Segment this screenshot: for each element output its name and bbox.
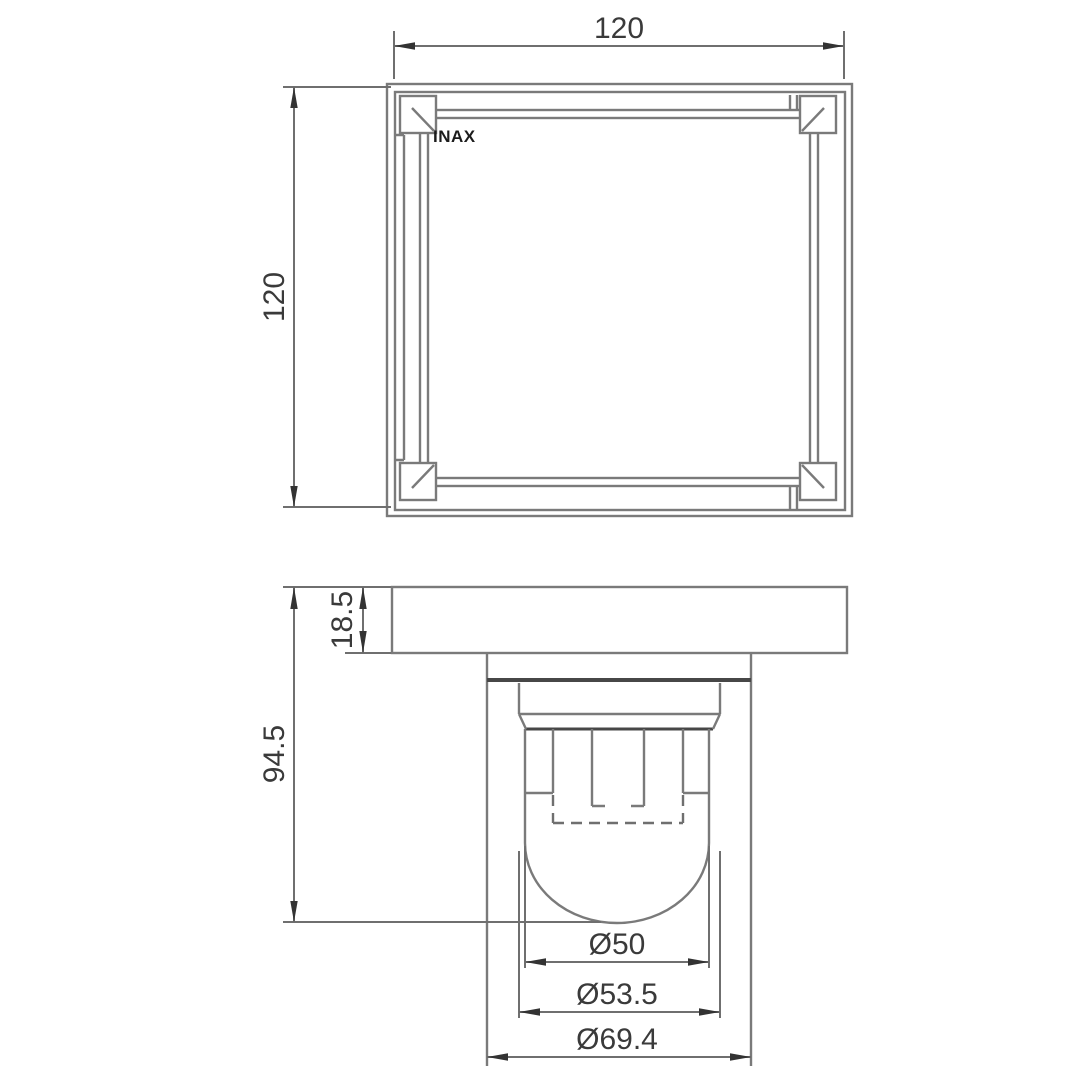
trap-bowl-arc <box>525 843 709 923</box>
plan-view: INAX <box>387 84 852 516</box>
plan-height-value: 120 <box>258 272 291 322</box>
arrowhead-top <box>290 587 297 609</box>
plan-width-value: 120 <box>594 12 644 45</box>
plan-corner-tab-bottom-left <box>400 463 436 500</box>
inner-diameter-value: Ø50 <box>589 928 646 961</box>
section-dimension-outer-diameter: Ø69.4 <box>487 1023 751 1061</box>
outer-diameter-value: Ø69.4 <box>576 1023 658 1056</box>
trap-cup <box>525 729 709 923</box>
section-flange <box>392 587 847 653</box>
arrowhead-left <box>487 1053 508 1060</box>
hidden-edges <box>553 795 683 823</box>
plan-corner-tab-bottom-right <box>800 463 836 500</box>
trap-legs <box>553 729 683 806</box>
arrowhead-right <box>699 1008 720 1015</box>
arrowhead-right <box>730 1053 751 1060</box>
arrowhead-bottom <box>290 901 297 922</box>
middle-diameter-value: Ø53.5 <box>576 978 658 1011</box>
arrowhead-right <box>688 958 709 965</box>
brand-logo: INAX <box>433 127 476 146</box>
flange-height-value: 18.5 <box>326 591 359 649</box>
plan-inner-frame <box>395 92 845 510</box>
plan-frame-slots <box>790 95 797 509</box>
section-dimension-overall-height: 94.5 <box>258 587 601 922</box>
arrowhead-left <box>394 42 415 50</box>
plan-dimension-height: 120 <box>258 87 391 507</box>
technical-drawing-page: INAX 120 120 <box>0 0 1090 1090</box>
floor-drain-technical-drawing: INAX 120 120 <box>0 0 1090 1090</box>
extension-lines <box>283 87 391 507</box>
overall-height-value: 94.5 <box>258 725 291 783</box>
plan-grate-lip-outer <box>420 110 818 486</box>
arrowhead-top <box>359 587 366 609</box>
insert-lip <box>519 683 720 729</box>
plan-outer-frame <box>387 84 852 516</box>
section-dimension-flange-height: 18.5 <box>283 587 391 653</box>
section-dimension-inner-diameter: Ø50 <box>525 846 709 968</box>
arrowhead-bottom <box>290 486 297 507</box>
arrowhead-left <box>519 1008 540 1015</box>
arrowhead-bottom <box>359 631 366 653</box>
arrowhead-left <box>525 958 546 965</box>
arrowhead-top <box>290 87 297 108</box>
plan-corner-tab-top-right <box>800 96 836 133</box>
plan-grate-lip-inner <box>428 118 810 478</box>
plan-dimension-width: 120 <box>394 12 844 79</box>
plan-corner-tab-top-left <box>400 96 436 133</box>
arrowhead-right <box>823 42 844 50</box>
plan-left-rail <box>396 135 404 460</box>
